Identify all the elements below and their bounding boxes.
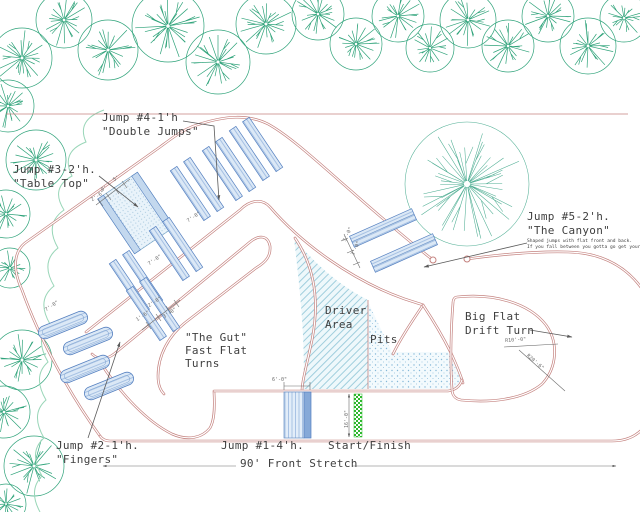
tree-icon — [0, 484, 26, 512]
tree-icon — [292, 0, 344, 40]
gut-label-line1: "The Gut" — [185, 331, 247, 345]
tree-icon — [36, 0, 92, 48]
big-tree-icon — [405, 122, 529, 246]
driver-area-label-line1: Driver — [325, 304, 367, 318]
gate-post — [430, 257, 436, 263]
jump3-label-line2: "Table Top" — [13, 177, 89, 191]
jump3-label-line1: Jump #3-2'h. — [13, 163, 96, 177]
dim-stretch-width: 16'-0" — [344, 410, 350, 428]
tree-icon — [78, 20, 138, 80]
jump2-label-line1: Jump #2-1'h. — [56, 439, 139, 453]
jump2-label-line2: "Fingers" — [56, 453, 118, 467]
tree-icon — [440, 0, 496, 48]
jump1-strip — [284, 392, 311, 438]
finger-jump — [36, 309, 89, 341]
driver-area-label-line2: Area — [325, 318, 353, 332]
tree-icon — [406, 24, 454, 72]
jump5-label-line2: "The Canyon" — [527, 224, 610, 238]
pits-label: Pits — [370, 333, 398, 347]
tree-icon — [0, 190, 30, 238]
plan-drawing — [0, 0, 640, 512]
tree-icon — [482, 20, 534, 72]
tree-icon — [522, 0, 574, 42]
jump5-label-line1: Jump #5-2'h. — [527, 210, 610, 224]
front-stretch-label: 90' Front Stretch — [240, 457, 358, 471]
jump5-note-line2: If you fall between you gotta go get you… — [527, 245, 640, 251]
tree-icon — [4, 436, 64, 496]
gut-label-line2: Fast Flat — [185, 344, 247, 358]
gut-label-line3: Turns — [185, 357, 220, 371]
jump1-label: Jump #1-4'h. — [221, 439, 304, 453]
jump4-label-line2: "Double Jumps" — [102, 125, 199, 139]
tree-icon — [600, 0, 640, 42]
tree-icon — [236, 0, 296, 54]
track-site-plan: Jump #4-1'h "Double Jumps" Jump #3-2'h. … — [0, 0, 640, 512]
start-finish-label: Start/Finish — [328, 439, 411, 453]
big-flat-label-line1: Big Flat — [465, 310, 520, 324]
tree-group — [0, 0, 640, 512]
tree-icon — [0, 28, 52, 88]
radius-line — [504, 344, 558, 347]
lane-divider — [92, 237, 270, 394]
tree-icon — [132, 0, 204, 62]
dim-jump1-width: 6'-0" — [272, 377, 287, 383]
tree-icon — [0, 386, 30, 438]
tree-icon — [372, 0, 424, 42]
tree-icon — [560, 18, 616, 74]
lane-divider — [92, 237, 270, 394]
jump4-label-line1: Jump #4-1'h — [102, 111, 178, 125]
start-finish-checker — [354, 394, 362, 437]
